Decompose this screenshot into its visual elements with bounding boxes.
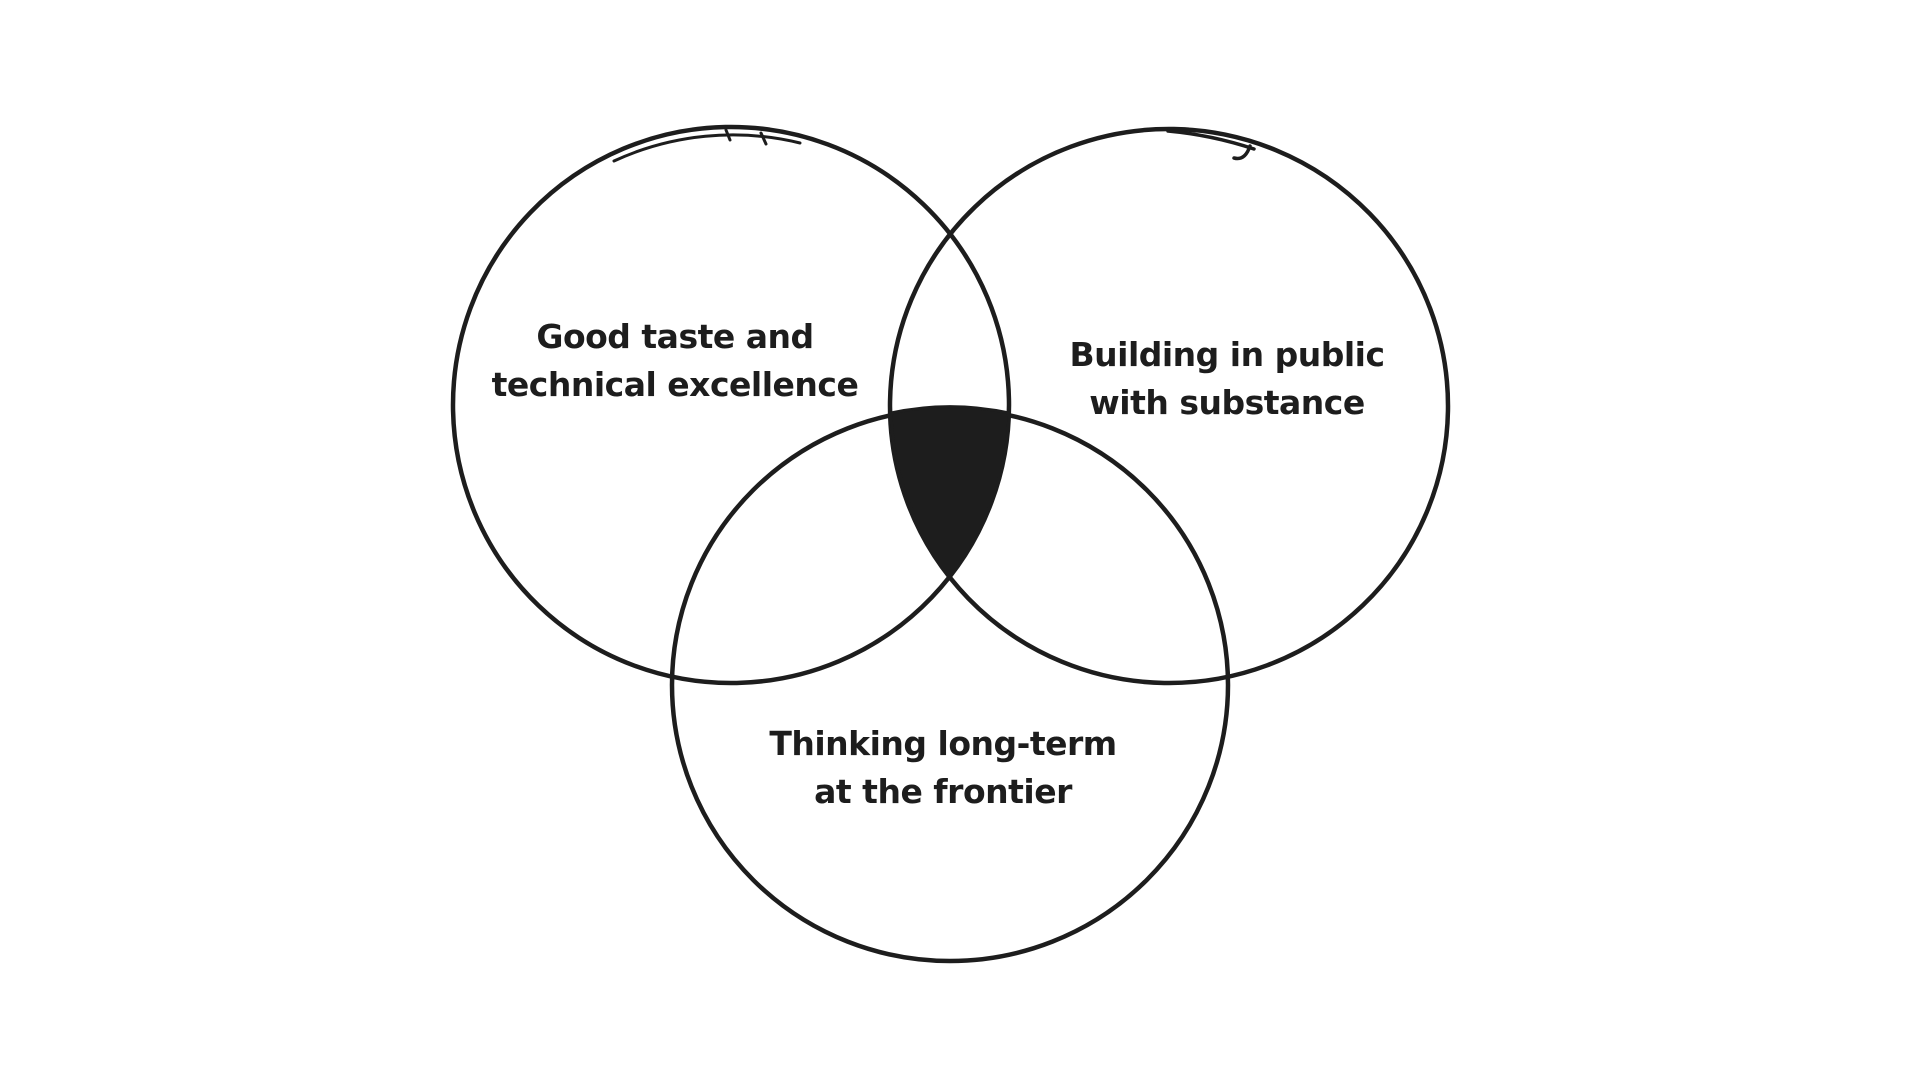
sketch-tick-left-1 bbox=[726, 130, 730, 140]
venn-diagram-canvas bbox=[0, 0, 1908, 1072]
label-building-public-line2: with substance bbox=[1069, 379, 1384, 427]
label-long-term-line1: Thinking long-term bbox=[769, 720, 1116, 768]
label-building-public-line1: Building in public bbox=[1069, 331, 1384, 379]
label-good-taste-line1: Good taste and bbox=[492, 313, 859, 361]
sketch-tick-left-2 bbox=[761, 133, 766, 144]
venn-diagram: Good taste and technical excellence Buil… bbox=[0, 0, 1908, 1072]
label-building-public: Building in public with substance bbox=[1069, 331, 1384, 427]
label-long-term: Thinking long-term at the frontier bbox=[769, 720, 1116, 816]
sketch-hook-right bbox=[1234, 146, 1250, 159]
triple-intersection-fill bbox=[891, 407, 1009, 576]
label-good-taste: Good taste and technical excellence bbox=[492, 313, 859, 409]
label-good-taste-line2: technical excellence bbox=[492, 361, 859, 409]
sketch-overdraw-arc-left bbox=[614, 135, 800, 161]
label-long-term-line2: at the frontier bbox=[769, 768, 1116, 816]
